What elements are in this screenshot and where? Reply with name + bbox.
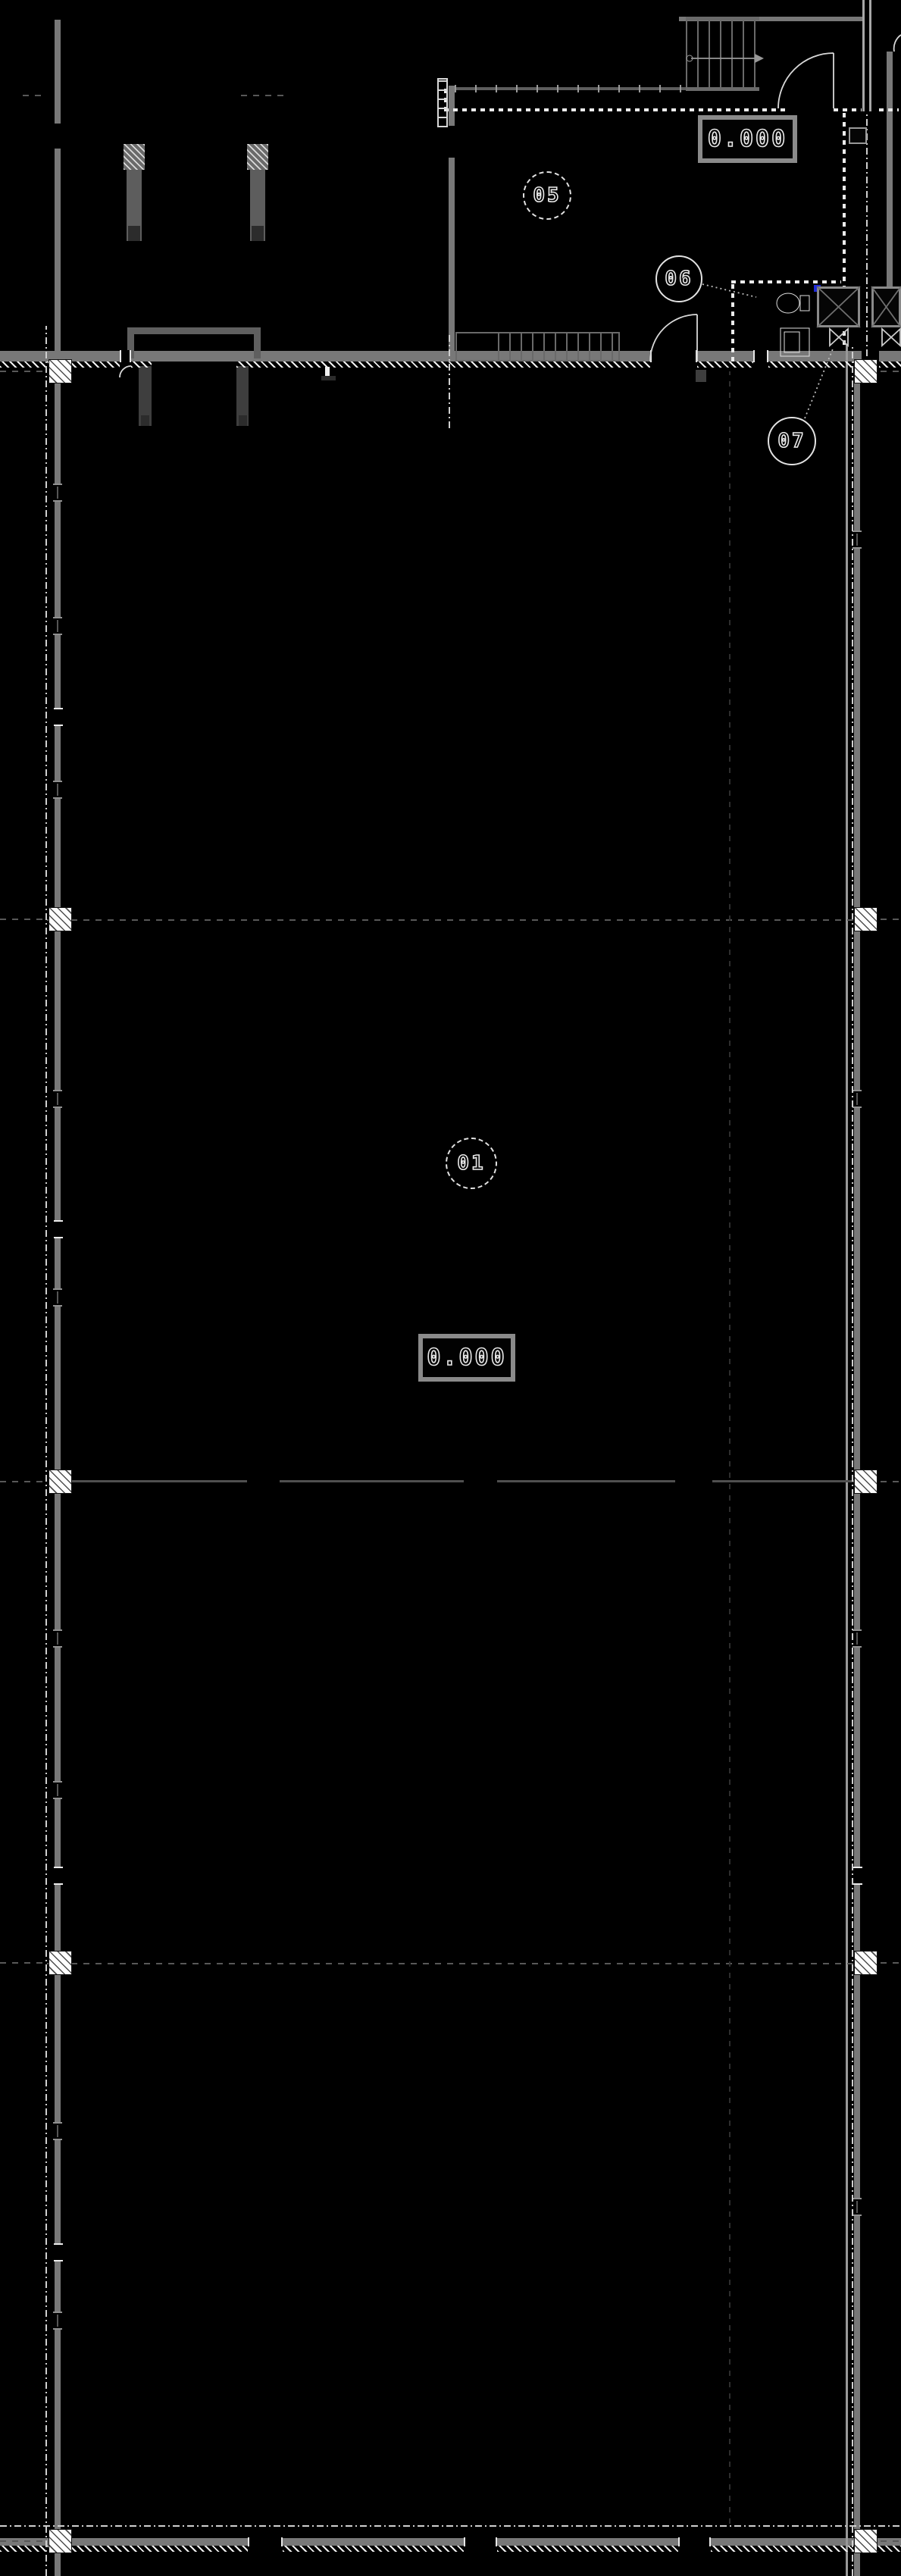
stair-arrow-head-icon [755, 54, 764, 63]
door-swing-left [120, 366, 131, 377]
shaft-brace-1 [817, 286, 860, 327]
shower-tray-icon [781, 328, 809, 356]
valve-icon-2 [882, 329, 900, 346]
valve-icon-1 [830, 329, 848, 346]
plan-linework [0, 0, 901, 2576]
toilet-tank-icon [800, 296, 809, 311]
shaft-brace-2 [871, 286, 901, 327]
toilet-icon [777, 293, 799, 313]
floor-plan-canvas: 0.0000.00005010607 [0, 0, 901, 2576]
shower-tray-inner [784, 332, 799, 352]
leader-tag-06 [702, 284, 756, 297]
leader-tag-07 [805, 347, 834, 418]
door-swing-center [650, 315, 697, 362]
door-swing-edge [894, 35, 901, 52]
door-swing-topright [778, 53, 834, 108]
